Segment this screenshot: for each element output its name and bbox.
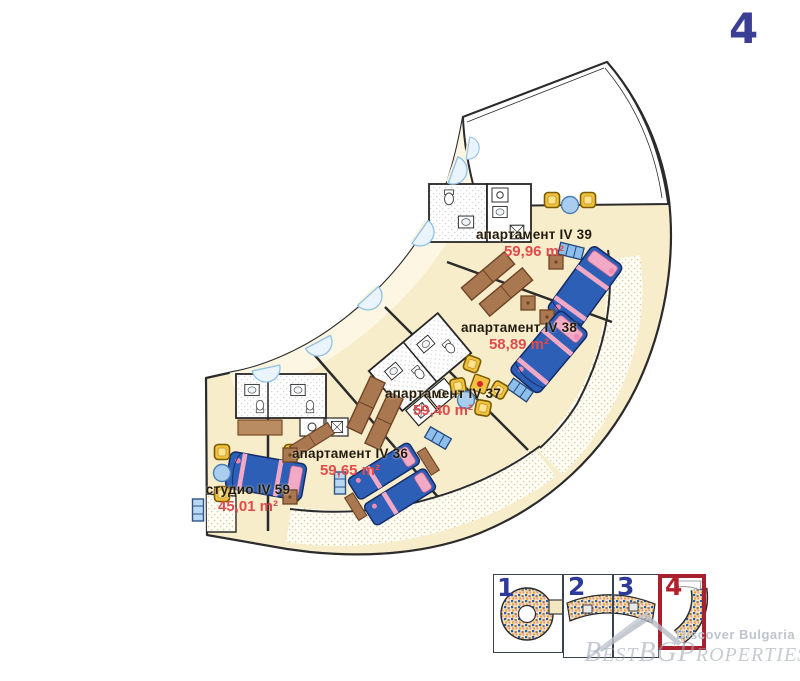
watermark-brand: BestBGProperties xyxy=(584,637,800,669)
current-floor-number: 4 xyxy=(729,8,758,50)
floor-thumbnail-2-number[interactable]: 2 xyxy=(568,574,585,599)
floor-thumbnail-4-number[interactable]: 4 xyxy=(665,574,682,599)
unit-name: апартамент IV 36 xyxy=(292,446,408,461)
unit-area: 59,65 m² xyxy=(292,462,408,479)
unit-area: 45,01 m² xyxy=(206,498,290,515)
unit-label-studio: студио IV 59 45,01 m² xyxy=(206,482,290,515)
unit-label-apt38: апартамент IV 38 58,89 m² xyxy=(461,320,577,353)
unit-area: 58,89 m² xyxy=(461,336,577,353)
unit-name: апартамент IV 37 xyxy=(385,386,501,401)
unit-label-apt39: апартамент IV 39 59,96 m² xyxy=(476,227,592,260)
unit-name: апартамент IV 39 xyxy=(476,227,592,242)
unit-area: 59,96 m² xyxy=(476,243,592,260)
unit-name: апартамент IV 38 xyxy=(461,320,577,335)
unit-area: 59,40 m² xyxy=(385,402,501,419)
floor-thumbnail-3-number[interactable]: 3 xyxy=(617,574,634,599)
unit-label-apt36: апартамент IV 36 59,65 m² xyxy=(292,446,408,479)
floor-plan-page: апартамент IV 39 59,96 m² апартамент IV … xyxy=(0,0,800,681)
unit-label-apt37: апартамент IV 37 59,40 m² xyxy=(385,386,501,419)
floor-thumbnail-1-number[interactable]: 1 xyxy=(497,575,514,600)
unit-name: студио IV 59 xyxy=(206,482,290,497)
